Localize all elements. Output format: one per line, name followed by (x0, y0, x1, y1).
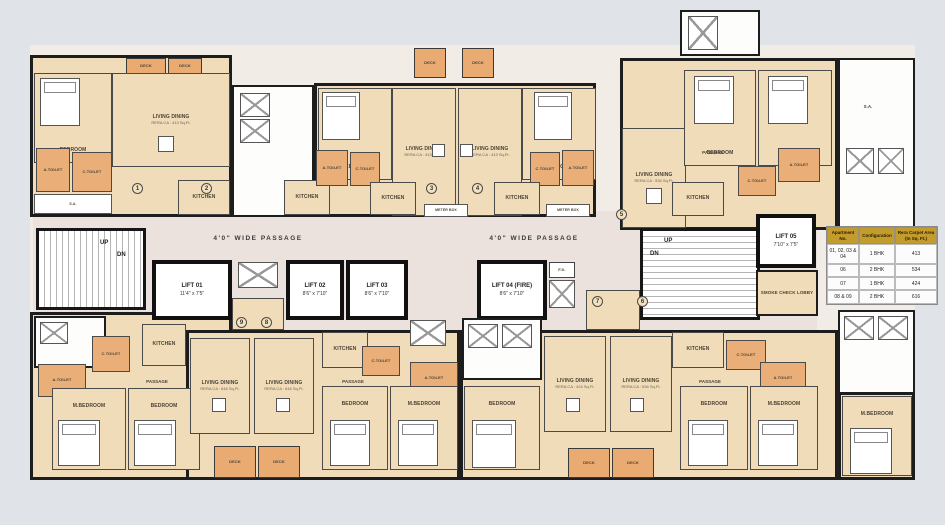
dining-table-icon (432, 144, 445, 157)
pillow-icon (772, 80, 804, 91)
room-label: C.TOILET (372, 359, 391, 364)
pillow-icon (762, 424, 794, 435)
dining-table-icon (460, 144, 473, 157)
deck: DECK (126, 58, 166, 74)
table-cell: 424 (895, 277, 937, 290)
apartment-number-7: 7 (592, 296, 603, 307)
bed-icon (850, 428, 892, 474)
stair-dn-label: DN (650, 251, 659, 257)
table-cell: 07 (827, 277, 859, 290)
room-c-toilet: C.TOILET (362, 346, 400, 376)
deck: DECK (214, 446, 256, 478)
room-living-dining: LIVING DININGRERA CA : 413 Sq.Ft. (112, 73, 230, 167)
apartment-number-3: 3 (426, 183, 437, 194)
bed-icon (330, 420, 370, 466)
room-c-toilet: C.TOILET (738, 166, 776, 196)
shaft (844, 316, 874, 340)
pillow-icon (44, 82, 76, 93)
table-cell: 1 BHK (859, 277, 895, 290)
rera-area-label: RERA CA : 534 Sq.Ft. (634, 178, 673, 183)
dining-table-icon (276, 398, 290, 412)
apartment-area-table: Apartment No. Configuration Rera Carpet … (826, 226, 938, 305)
table-cell: 2 BHK (859, 290, 895, 303)
room-label: KITCHEN (296, 195, 319, 201)
utility-label: S.A. (69, 202, 76, 206)
lift-03: LIFT 038'6" x 7'10" (346, 260, 408, 320)
deck-label: DECK (179, 64, 191, 69)
stair-up-label: UP (664, 238, 672, 244)
bed-icon (694, 76, 734, 124)
bed-icon (472, 420, 516, 468)
room-c-toilet: C.TOILET (530, 152, 560, 186)
passage-width-label-left: 4'0" WIDE PASSAGE (210, 235, 306, 242)
table-cell: 06 (827, 264, 859, 277)
lift-size: 8'6" x 7'10" (303, 291, 328, 297)
dining-table-icon (566, 398, 580, 412)
table-cell: 01, 02, 03 & 04 (827, 244, 859, 264)
pillow-icon (538, 96, 568, 107)
smoke-check-lobby: SMOKE CHECK LOBBY (756, 270, 818, 316)
apartment-number-9: 9 (236, 317, 247, 328)
lift-name: LIFT 05 (775, 234, 796, 241)
lift-05: LIFT 057'10" x 7'5" (756, 214, 816, 268)
room-label: KITCHEN (687, 347, 710, 353)
table-cell: 534 (895, 264, 937, 277)
shaft (878, 316, 908, 340)
room-label: C.TOILET (83, 170, 102, 175)
room-c-toilet: C.TOILET (92, 336, 130, 372)
lift-name: LIFT 03 (366, 283, 387, 290)
room-label: BEDROOM (489, 402, 516, 408)
pillow-icon (326, 96, 356, 107)
shaft (40, 322, 68, 344)
deck: DECK (568, 448, 610, 478)
apartment-number-6: 6 (637, 296, 648, 307)
rera-area-label: RERA CA : 534 Sq.Ft. (621, 384, 660, 389)
room-label: KITCHEN (382, 196, 405, 202)
lift-size: 11'4" x 7'5" (180, 291, 204, 297)
bed-icon (398, 420, 438, 466)
rera-area-label: RERA CA : 424 Sq.Ft. (555, 384, 594, 389)
shaft (846, 148, 874, 174)
deck-label: DECK (627, 461, 639, 466)
shaft (468, 324, 498, 348)
room-label: KITCHEN (687, 196, 710, 202)
room-living-dining: LIVING DININGRERA CA : 534 Sq.Ft. (610, 336, 672, 432)
room-living-dining: LIVING DININGRERA CA : 616 Sq.Ft. (254, 338, 314, 434)
deck: DECK (414, 48, 446, 78)
meter-box: METER BOX (424, 204, 468, 217)
passage-label: PASSAGE (684, 150, 742, 159)
lift-name: LIFT 01 (181, 283, 202, 290)
room-label: A.TOILET (44, 168, 63, 173)
rera-area-label: RERA CA : 413 Sq.Ft. (151, 120, 190, 125)
room-label: M.BEDROOM (73, 404, 106, 410)
rera-area-label: RERA CA : 616 Sq.Ft. (200, 386, 239, 391)
pillow-icon (692, 424, 724, 435)
utility-box: S.A. (34, 194, 112, 214)
shaft (410, 320, 446, 346)
bed-icon (758, 420, 798, 466)
staircase-right (640, 228, 760, 320)
room-c-toilet: C.TOILET (72, 152, 112, 192)
deck: DECK (258, 446, 300, 478)
deck: DECK (462, 48, 494, 78)
sa-label: S.A. (858, 104, 878, 112)
pillow-icon (854, 432, 888, 443)
dining-table-icon (630, 398, 644, 412)
deck-label: DECK (472, 61, 484, 66)
pillow-icon (476, 424, 512, 435)
rera-area-label: RERA CA : 413 Sq.Ft. (470, 152, 509, 157)
stair-dn-label: DN (117, 252, 126, 258)
apartment-number-8: 8 (261, 317, 272, 328)
fd-label: F.D. (558, 268, 566, 273)
room-kitchen: KITCHEN (370, 182, 416, 215)
lift-name: LIFT 04 (FIRE) (492, 283, 532, 290)
rera-area-label: RERA CA : 616 Sq.Ft. (264, 386, 303, 391)
lift-name: LIFT 02 (304, 283, 325, 290)
passage-width-label-right: 4'0" WIDE PASSAGE (486, 235, 582, 242)
shaft (240, 119, 270, 143)
room-a-toilet: A.TOILET (316, 150, 348, 186)
room-label: A.TOILET (53, 378, 72, 383)
staircase-left (36, 228, 146, 310)
lift-size: 7'10" x 7'5" (774, 242, 799, 248)
meter-box-label: METER BOX (557, 208, 579, 212)
table-header-rera-area: Rera Carpet Area (In Sq. Ft.) (895, 227, 937, 244)
deck-label: DECK (140, 64, 152, 69)
pillow-icon (402, 424, 434, 435)
deck: DECK (168, 58, 202, 74)
room-label: C.TOILET (737, 353, 756, 358)
passage-label: PASSAGE (134, 379, 180, 388)
lift-size: 8'6" x 7'10" (500, 291, 525, 297)
table-cell: 08 & 09 (827, 290, 859, 303)
room-label: BEDROOM (701, 402, 728, 408)
room-label: A.TOILET (425, 376, 444, 381)
apartment-number-1: 1 (132, 183, 143, 194)
table-header-apartment-no: Apartment No. (827, 227, 859, 244)
room-label: A.TOILET (323, 166, 342, 171)
shaft (688, 16, 718, 50)
lift-04-fire: LIFT 04 (FIRE)8'6" x 7'10" (477, 260, 547, 320)
deck: DECK (612, 448, 654, 478)
room-kitchen: KITCHEN (672, 182, 724, 216)
room-label: M.BEDROOM (768, 402, 801, 408)
room-label: M.BEDROOM (861, 412, 894, 418)
room-label: A.TOILET (774, 376, 793, 381)
room-a-toilet: A.TOILET (562, 150, 594, 186)
bed-icon (58, 420, 100, 466)
room-label: A.TOILET (790, 163, 809, 168)
room-c-toilet: C.TOILET (350, 152, 380, 186)
lift-size: 8'6" x 7'10" (365, 291, 390, 297)
meter-box-label: METER BOX (435, 208, 457, 212)
room-label: C.TOILET (748, 179, 767, 184)
pillow-icon (698, 80, 730, 91)
apartment-number-5: 5 (616, 209, 627, 220)
meter-box: METER BOX (546, 204, 590, 217)
room-kitchen: KITCHEN (142, 324, 186, 366)
apartment-number-2: 2 (201, 183, 212, 194)
dining-table-icon (212, 398, 226, 412)
shaft (549, 280, 575, 308)
shaft (240, 93, 270, 117)
bed-icon (40, 78, 80, 126)
table-cell: 2 BHK (859, 264, 895, 277)
table-cell: 616 (895, 290, 937, 303)
dining-table-icon (646, 188, 662, 204)
smoke-check-lobby-label: SMOKE CHECK LOBBY (761, 290, 813, 295)
room-label: KITCHEN (506, 196, 529, 202)
bed-icon (134, 420, 176, 466)
room-a-toilet: A.TOILET (778, 148, 820, 182)
room-label: BEDROOM (151, 404, 178, 410)
room-a-toilet: A.TOILET (36, 148, 70, 192)
table-cell: 1 BHK (859, 244, 895, 264)
room-label: BEDROOM (342, 402, 369, 408)
pillow-icon (138, 424, 172, 435)
room-label: C.TOILET (102, 352, 121, 357)
deck-label: DECK (424, 61, 436, 66)
room-label: KITCHEN (334, 347, 357, 353)
bed-icon (768, 76, 808, 124)
table-header-configuration: Configuration (859, 227, 895, 244)
apartment-number-4: 4 (472, 183, 483, 194)
shaft (238, 262, 278, 288)
table-cell: 413 (895, 244, 937, 264)
dining-table-icon (158, 136, 174, 152)
floor-plan: DECK DECK BEDROOM LIVING DININGRERA CA :… (0, 0, 945, 525)
room-label: C.TOILET (356, 167, 375, 172)
stair-up-label: UP (100, 240, 108, 246)
room-kitchen: KITCHEN (672, 332, 724, 368)
bed-icon (322, 92, 360, 140)
pillow-icon (62, 424, 96, 435)
room-living-dining: LIVING DININGRERA CA : 616 Sq.Ft. (190, 338, 250, 434)
fire-duct-box: F.D. (549, 262, 575, 278)
room-label: KITCHEN (153, 342, 176, 348)
room-kitchen: KITCHEN (494, 182, 540, 215)
deck-label: DECK (583, 461, 595, 466)
deck-label: DECK (273, 460, 285, 465)
bed-icon (688, 420, 728, 466)
core-top-right-column (838, 58, 915, 230)
shaft (502, 324, 532, 348)
room-living-dining: LIVING DININGRERA CA : 424 Sq.Ft. (544, 336, 606, 432)
lift-01: LIFT 0111'4" x 7'5" (152, 260, 232, 320)
room-label: C.TOILET (536, 167, 555, 172)
pillow-icon (334, 424, 366, 435)
room-label: A.TOILET (569, 166, 588, 171)
room-label: M.BEDROOM (408, 402, 441, 408)
bed-icon (534, 92, 572, 140)
shaft (878, 148, 904, 174)
room-label: KITCHEN (193, 195, 216, 201)
deck-label: DECK (229, 460, 241, 465)
lift-02: LIFT 028'6" x 7'10" (286, 260, 344, 320)
